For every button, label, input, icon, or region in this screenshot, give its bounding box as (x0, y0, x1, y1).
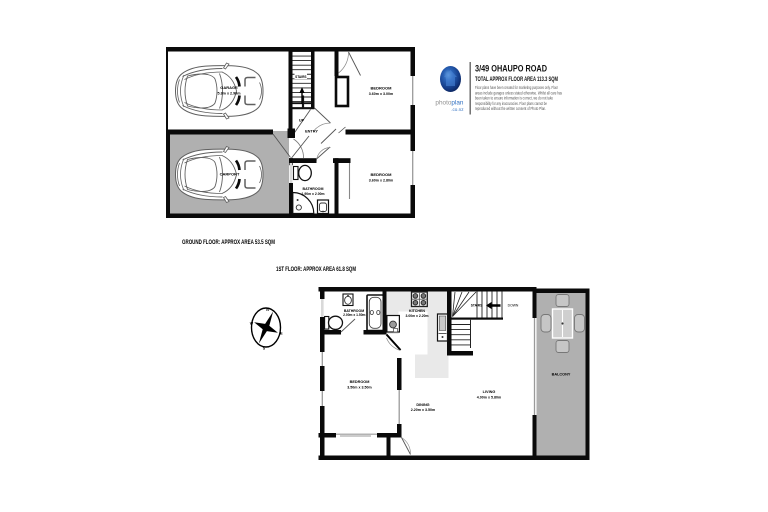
svg-text:Floor plans have been created: Floor plans have been created for market… (475, 85, 558, 90)
svg-text:4.00m x 5.80m: 4.00m x 5.80m (477, 395, 501, 399)
svg-text:GROUND FLOOR: APPROX AREA 53.5: GROUND FLOOR: APPROX AREA 53.5 SQM (182, 239, 275, 246)
svg-text:3.60m x 3.00m: 3.60m x 3.00m (369, 92, 393, 96)
svg-text:LIVING: LIVING (483, 390, 496, 394)
svg-text:2.00m x 1.50m: 2.00m x 1.50m (343, 313, 365, 317)
svg-text:UP: UP (299, 119, 305, 123)
svg-text:1.90m x 2.00m: 1.90m x 2.00m (302, 192, 325, 196)
svg-text:N: N (266, 308, 269, 312)
svg-text:3.60m x 2.80m: 3.60m x 2.80m (369, 179, 393, 183)
svg-text:1ST FLOOR: APPROX AREA 61.8 SQ: 1ST FLOOR: APPROX AREA 61.8 SQM (276, 266, 356, 273)
svg-text:STAIRS: STAIRS (295, 75, 306, 79)
svg-text:DINING: DINING (416, 403, 429, 407)
svg-text:TOTAL APPROX FLOOR AREA 113.3: TOTAL APPROX FLOOR AREA 113.3 SQM (475, 76, 558, 83)
svg-text:CARPORT: CARPORT (220, 172, 240, 177)
svg-text:3/49 OHAUPO ROAD: 3/49 OHAUPO ROAD (475, 63, 547, 74)
svg-text:5.8m x 2.90m: 5.8m x 2.90m (218, 92, 242, 96)
svg-text:W: W (250, 322, 254, 326)
svg-text:responsibility for any inaccur: responsibility for any inaccuracies. Flo… (475, 101, 548, 106)
svg-text:been taken to ensure informati: been taken to ensure information is corr… (475, 96, 554, 101)
svg-text:STAIRS: STAIRS (471, 304, 482, 308)
svg-text:DOWN: DOWN (508, 304, 519, 308)
svg-text:2.20m x 3.50m: 2.20m x 3.50m (411, 408, 435, 412)
svg-text:ENTRY: ENTRY (305, 130, 318, 134)
svg-text:BEDROOM: BEDROOM (350, 380, 370, 384)
svg-text:3.00m x 2.20m: 3.00m x 2.20m (406, 314, 429, 318)
svg-text:.co.nz: .co.nz (451, 107, 464, 112)
svg-text:areas include garages unless s: areas include garages unless stated othe… (475, 90, 562, 95)
svg-text:BATHROOM: BATHROOM (303, 187, 324, 191)
svg-text:KITCHEN: KITCHEN (409, 309, 425, 313)
svg-text:GARAGE: GARAGE (220, 85, 238, 90)
svg-text:reproduced without the written: reproduced without the written consent o… (475, 106, 546, 111)
svg-text:BALCONY: BALCONY (552, 373, 571, 377)
svg-text:BEDROOM: BEDROOM (371, 172, 393, 177)
svg-text:BEDROOM: BEDROOM (371, 86, 393, 91)
svg-text:photoplan: photoplan (435, 100, 464, 107)
svg-text:3.50m x 3.50m: 3.50m x 3.50m (347, 386, 371, 390)
